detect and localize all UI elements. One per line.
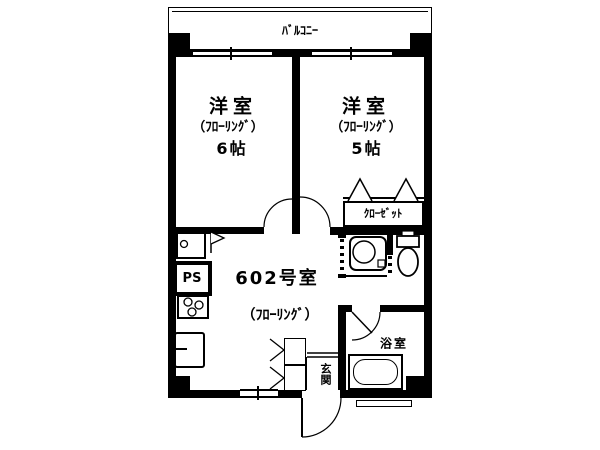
stove-burner-icon: [184, 298, 192, 306]
toilet-bowl-icon: [398, 248, 418, 276]
symbol-layer: [0, 0, 600, 450]
counter-drain-icon: [181, 241, 188, 248]
bedroom1-door-arc: [264, 199, 292, 227]
closet-folddoor-icon: [394, 179, 418, 201]
closet-folddoor-icon: [348, 179, 372, 201]
vent-flag-icon: [211, 232, 224, 244]
washbasin-bowl-icon: [353, 241, 375, 263]
bifold-door-icon: [270, 339, 284, 361]
stove-burner-icon: [188, 308, 196, 316]
bifold-door-icon: [270, 367, 284, 389]
entrance-door-arc: [302, 398, 341, 437]
toilet-tank-icon: [397, 236, 419, 247]
washbasin-tap-icon: [378, 260, 385, 267]
floorplan: ﾊﾞﾙｺﾆｰ ｸﾛｰｾﾞｯﾄ PS 洋室 （ﾌﾛｰﾘﾝｸﾞ） 6帖 洋室 （ﾌ: [0, 0, 600, 450]
bedroom2-door-arc: [300, 197, 330, 227]
stove-burner-icon: [195, 301, 203, 309]
bathroom-door-leaf: [352, 312, 372, 333]
